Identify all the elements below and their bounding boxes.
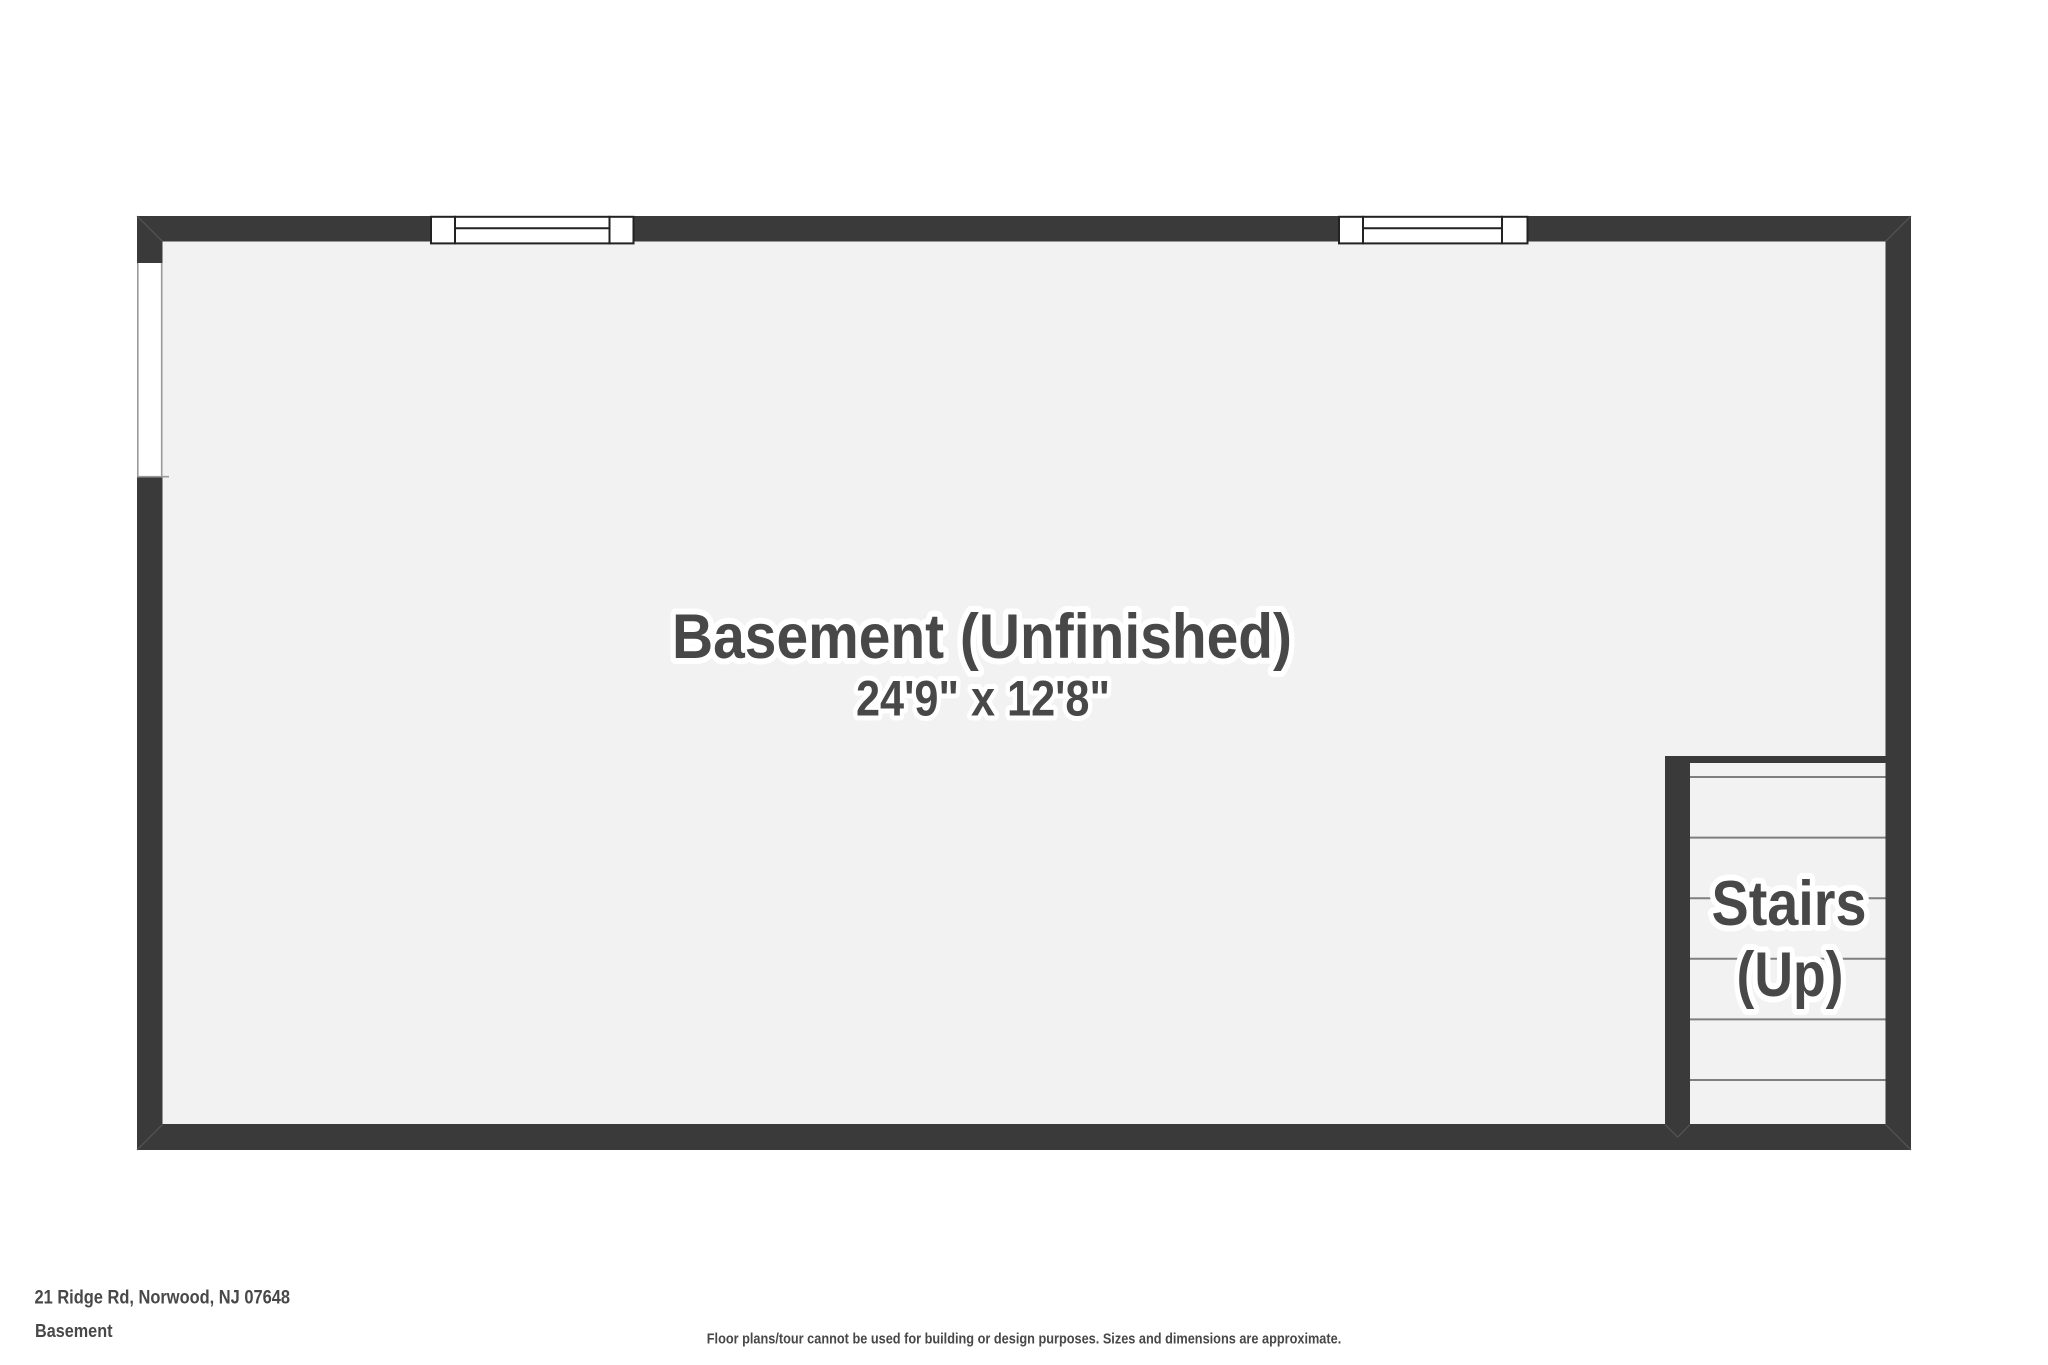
- svg-text:21 Ridge Rd, Norwood, NJ 07648: 21 Ridge Rd, Norwood, NJ 07648: [35, 1287, 291, 1308]
- svg-text:Stairs: Stairs: [1712, 869, 1867, 939]
- svg-text:Basement (Unfinished): Basement (Unfinished): [672, 602, 1292, 672]
- svg-text:Basement: Basement: [35, 1321, 113, 1341]
- svg-text:(Up): (Up): [1737, 940, 1844, 1010]
- svg-text:Floor plans/tour cannot be use: Floor plans/tour cannot be used for buil…: [707, 1331, 1342, 1348]
- svg-text:24'9" x 12'8": 24'9" x 12'8": [856, 671, 1110, 727]
